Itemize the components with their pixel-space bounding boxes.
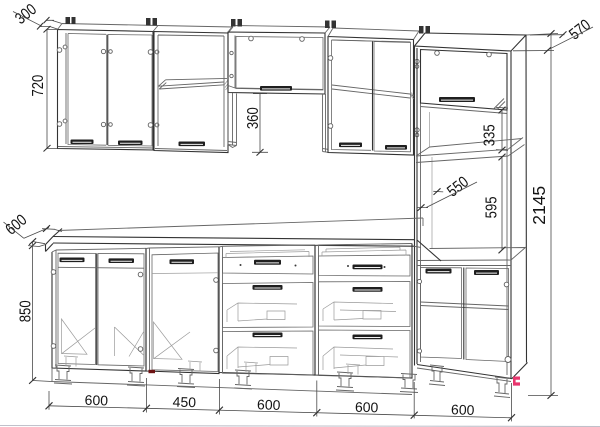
svg-text:335: 335 bbox=[482, 124, 499, 146]
svg-text:720: 720 bbox=[30, 75, 47, 97]
svg-text:600: 600 bbox=[84, 392, 108, 409]
svg-text:600: 600 bbox=[355, 399, 379, 416]
svg-text:595: 595 bbox=[483, 196, 500, 218]
svg-text:600: 600 bbox=[257, 396, 281, 413]
svg-text:600: 600 bbox=[451, 401, 475, 418]
svg-text:450: 450 bbox=[172, 394, 196, 411]
svg-text:2145: 2145 bbox=[529, 186, 549, 225]
